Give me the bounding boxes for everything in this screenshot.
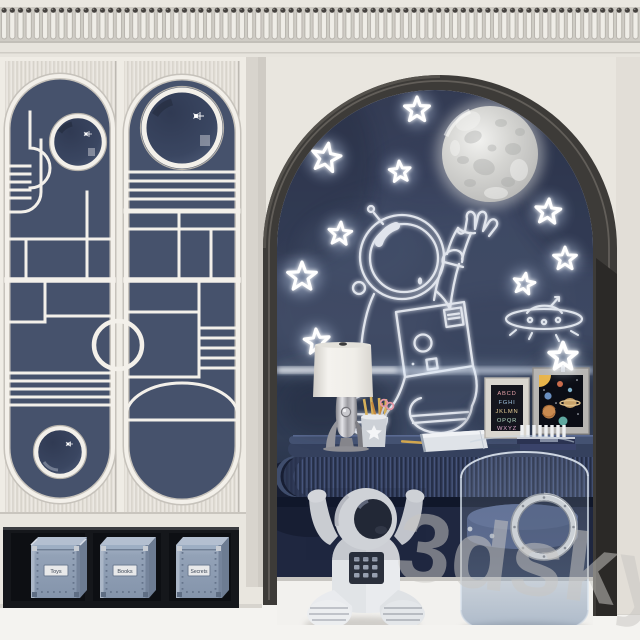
svg-text:Books: Books [117, 569, 133, 575]
svg-text:Toys: Toys [50, 569, 62, 575]
svg-text:FGHI: FGHI [498, 400, 515, 406]
svg-text:WXYZ: WXYZ [497, 426, 517, 432]
svg-text:Secrets: Secrets [191, 569, 208, 575]
svg-text:OPQR: OPQR [497, 418, 517, 424]
svg-text:ABCD: ABCD [497, 391, 516, 397]
svg-text:JKLMN: JKLMN [495, 409, 518, 415]
